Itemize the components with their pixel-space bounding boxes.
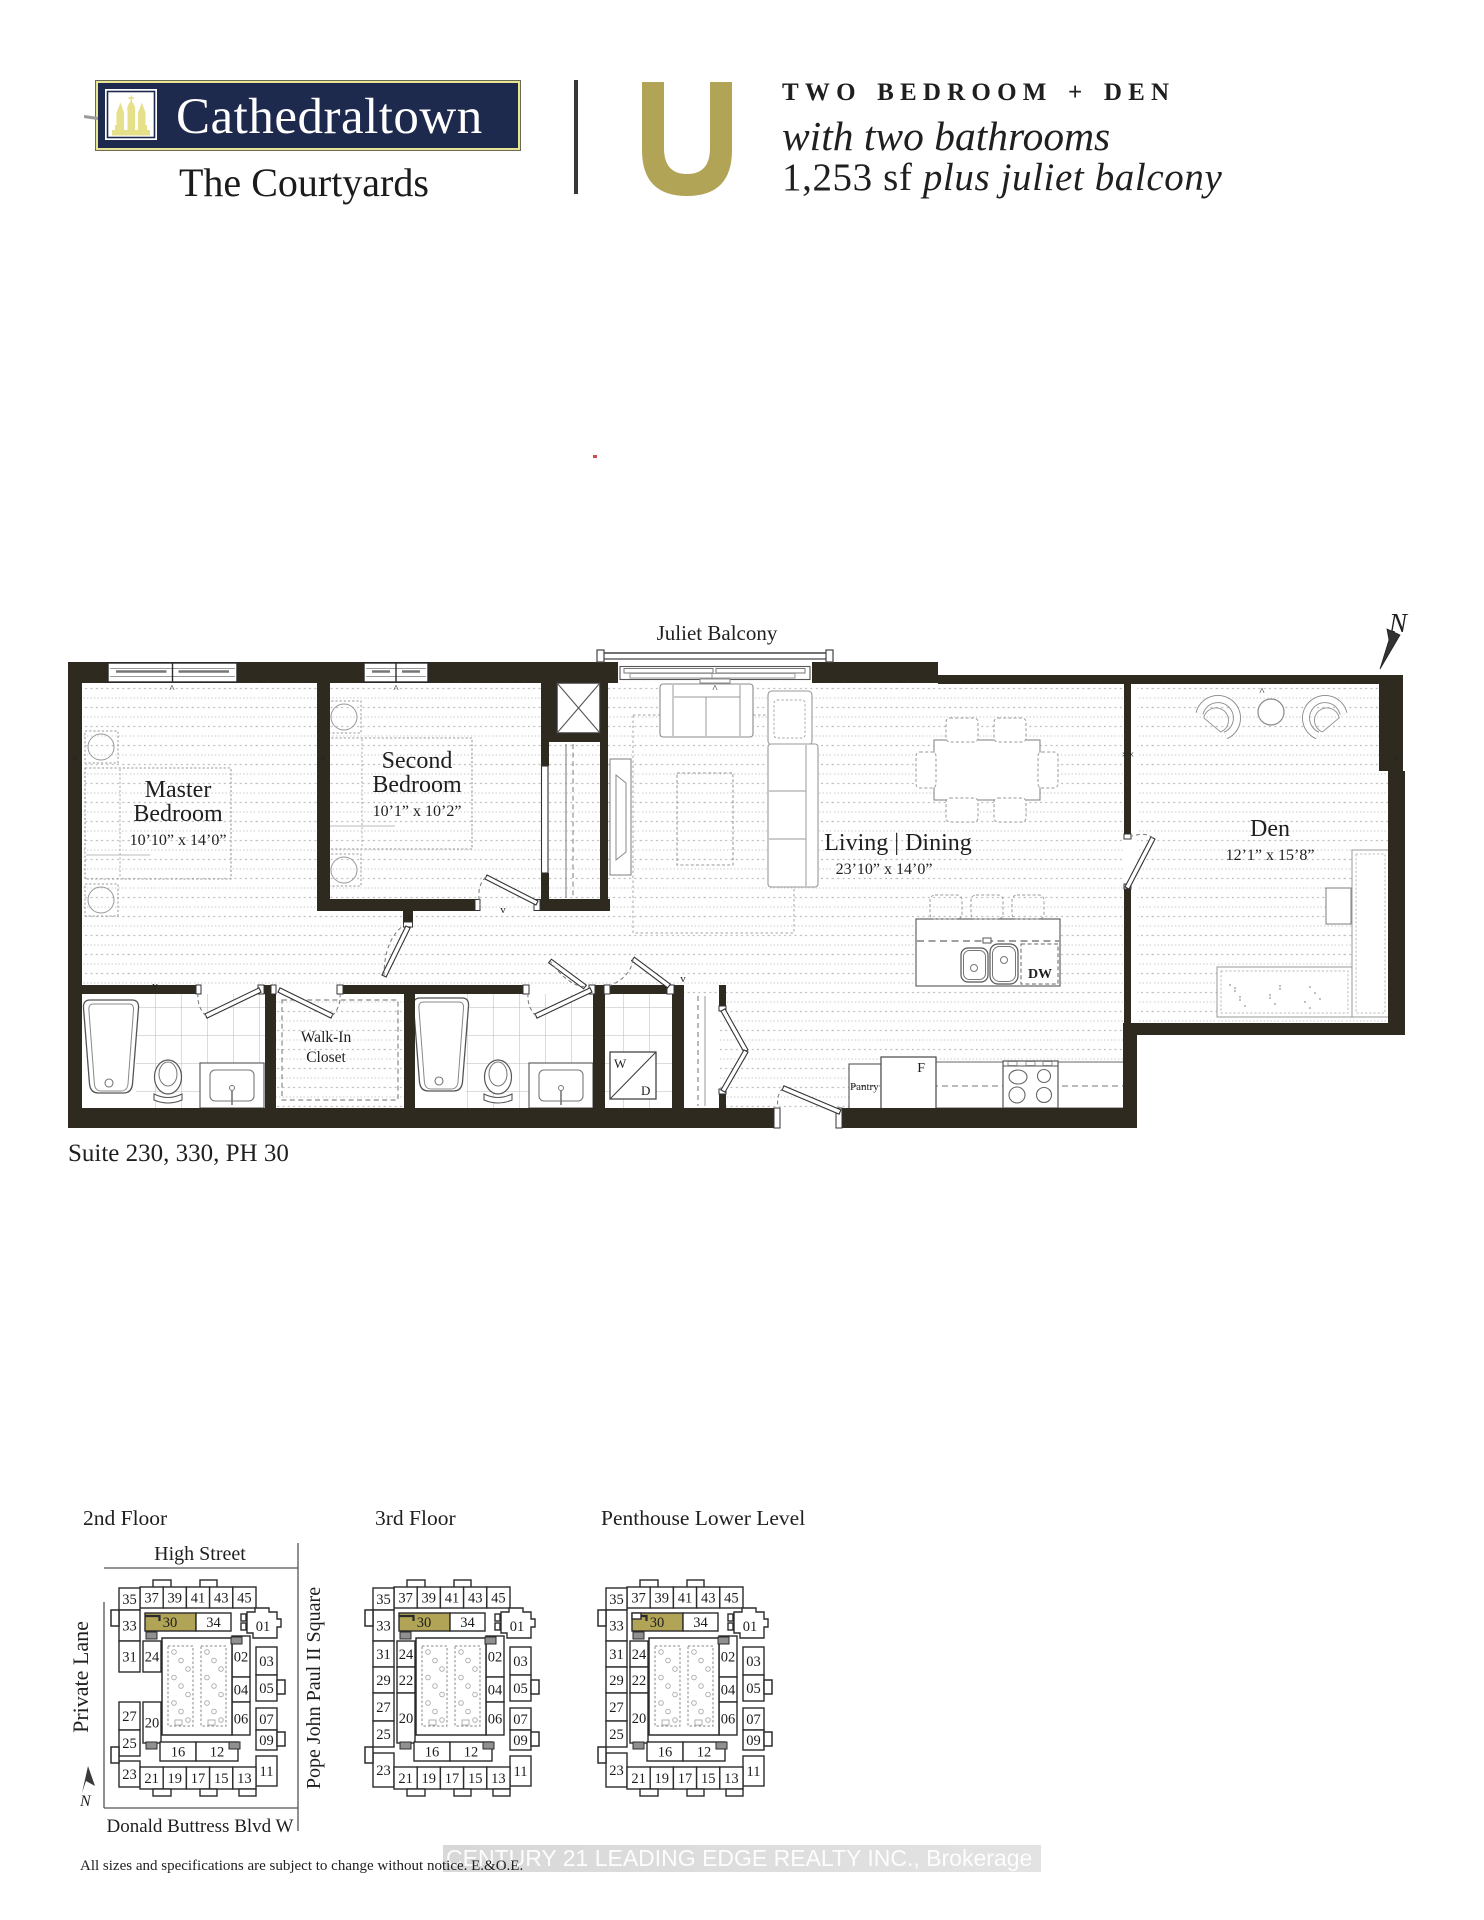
svg-text:30: 30	[417, 1615, 432, 1631]
svg-text:17: 17	[678, 1771, 693, 1787]
svg-text:01: 01	[743, 1619, 758, 1635]
svg-text:20: 20	[145, 1716, 160, 1732]
svg-text:27: 27	[376, 1700, 391, 1716]
svg-text:34: 34	[460, 1615, 475, 1631]
svg-text:35: 35	[609, 1592, 624, 1608]
svg-text:24: 24	[399, 1647, 414, 1663]
svg-text:30: 30	[163, 1615, 178, 1631]
svg-text:20: 20	[399, 1711, 414, 1727]
svg-text:16: 16	[171, 1745, 186, 1761]
svg-text:3rd Floor: 3rd Floor	[375, 1506, 456, 1530]
svg-text:04: 04	[234, 1683, 249, 1699]
svg-text:33: 33	[376, 1619, 391, 1635]
svg-text:34: 34	[206, 1615, 221, 1631]
svg-text:01: 01	[510, 1619, 525, 1635]
svg-text:07: 07	[746, 1712, 761, 1728]
svg-text:16: 16	[425, 1745, 440, 1761]
svg-text:45: 45	[724, 1591, 739, 1607]
svg-text:High Street: High Street	[154, 1543, 246, 1565]
svg-text:25: 25	[122, 1736, 137, 1752]
svg-text:31: 31	[122, 1650, 137, 1666]
svg-text:13: 13	[724, 1771, 739, 1787]
svg-text:41: 41	[191, 1591, 206, 1607]
svg-text:04: 04	[488, 1683, 503, 1699]
svg-text:45: 45	[491, 1591, 506, 1607]
svg-text:19: 19	[655, 1771, 670, 1787]
svg-text:16: 16	[658, 1745, 673, 1761]
svg-text:13: 13	[491, 1771, 506, 1787]
svg-text:33: 33	[122, 1619, 137, 1635]
svg-text:43: 43	[701, 1591, 716, 1607]
svg-text:05: 05	[513, 1681, 528, 1697]
svg-text:02: 02	[488, 1650, 503, 1666]
svg-text:15: 15	[701, 1771, 716, 1787]
svg-text:03: 03	[746, 1654, 761, 1670]
svg-text:39: 39	[655, 1591, 670, 1607]
svg-text:Donald Buttress Blvd W: Donald Buttress Blvd W	[106, 1816, 293, 1837]
svg-text:37: 37	[631, 1591, 646, 1607]
svg-text:25: 25	[609, 1727, 624, 1743]
svg-text:31: 31	[376, 1647, 391, 1663]
svg-text:07: 07	[513, 1712, 528, 1728]
svg-text:12: 12	[464, 1745, 479, 1761]
svg-text:05: 05	[746, 1681, 761, 1697]
svg-text:34: 34	[693, 1615, 708, 1631]
svg-text:11: 11	[260, 1764, 274, 1780]
svg-text:17: 17	[191, 1771, 206, 1787]
svg-text:12: 12	[697, 1745, 712, 1761]
svg-text:17: 17	[445, 1771, 460, 1787]
svg-text:23: 23	[376, 1763, 391, 1779]
svg-text:21: 21	[631, 1771, 646, 1787]
svg-text:07: 07	[259, 1712, 274, 1728]
svg-text:35: 35	[376, 1592, 391, 1608]
svg-text:06: 06	[488, 1712, 503, 1728]
svg-text:45: 45	[237, 1591, 252, 1607]
svg-text:19: 19	[422, 1771, 437, 1787]
svg-text:41: 41	[678, 1591, 693, 1607]
svg-text:39: 39	[168, 1591, 183, 1607]
svg-text:13: 13	[237, 1771, 252, 1787]
svg-text:15: 15	[214, 1771, 229, 1787]
svg-text:12: 12	[210, 1745, 225, 1761]
svg-text:02: 02	[234, 1650, 249, 1666]
svg-text:24: 24	[632, 1647, 647, 1663]
svg-text:37: 37	[144, 1591, 159, 1607]
svg-text:33: 33	[609, 1619, 624, 1635]
svg-text:35: 35	[122, 1592, 137, 1608]
svg-text:Private Lane: Private Lane	[68, 1621, 93, 1733]
svg-text:21: 21	[398, 1771, 413, 1787]
svg-text:23: 23	[122, 1767, 137, 1783]
svg-text:39: 39	[422, 1591, 437, 1607]
svg-text:41: 41	[445, 1591, 460, 1607]
svg-text:19: 19	[168, 1771, 183, 1787]
svg-text:29: 29	[376, 1673, 391, 1689]
svg-text:43: 43	[468, 1591, 483, 1607]
svg-text:09: 09	[259, 1733, 274, 1749]
svg-text:03: 03	[259, 1654, 274, 1670]
svg-text:29: 29	[609, 1673, 624, 1689]
svg-text:31: 31	[609, 1647, 624, 1663]
svg-text:03: 03	[513, 1654, 528, 1670]
svg-text:02: 02	[721, 1650, 736, 1666]
svg-text:20: 20	[632, 1711, 647, 1727]
svg-text:22: 22	[632, 1673, 647, 1689]
svg-text:27: 27	[122, 1709, 137, 1725]
svg-text:22: 22	[399, 1673, 414, 1689]
svg-text:15: 15	[468, 1771, 483, 1787]
svg-text:27: 27	[609, 1700, 624, 1716]
svg-text:23: 23	[609, 1763, 624, 1779]
svg-text:09: 09	[746, 1733, 761, 1749]
svg-text:06: 06	[721, 1712, 736, 1728]
svg-text:21: 21	[144, 1771, 159, 1787]
svg-text:11: 11	[747, 1764, 761, 1780]
svg-text:09: 09	[513, 1733, 528, 1749]
svg-text:04: 04	[721, 1683, 736, 1699]
svg-text:N: N	[79, 1793, 92, 1810]
svg-text:25: 25	[376, 1727, 391, 1743]
svg-text:24: 24	[145, 1650, 160, 1666]
svg-text:2nd Floor: 2nd Floor	[83, 1506, 167, 1530]
svg-text:43: 43	[214, 1591, 229, 1607]
svg-text:Penthouse Lower Level: Penthouse Lower Level	[601, 1506, 805, 1530]
svg-text:05: 05	[259, 1681, 274, 1697]
svg-text:37: 37	[398, 1591, 413, 1607]
svg-text:Pope John Paul II Square: Pope John Paul II Square	[303, 1587, 325, 1789]
svg-text:01: 01	[256, 1619, 271, 1635]
svg-text:11: 11	[514, 1764, 528, 1780]
svg-text:06: 06	[234, 1712, 249, 1728]
svg-text:30: 30	[650, 1615, 665, 1631]
